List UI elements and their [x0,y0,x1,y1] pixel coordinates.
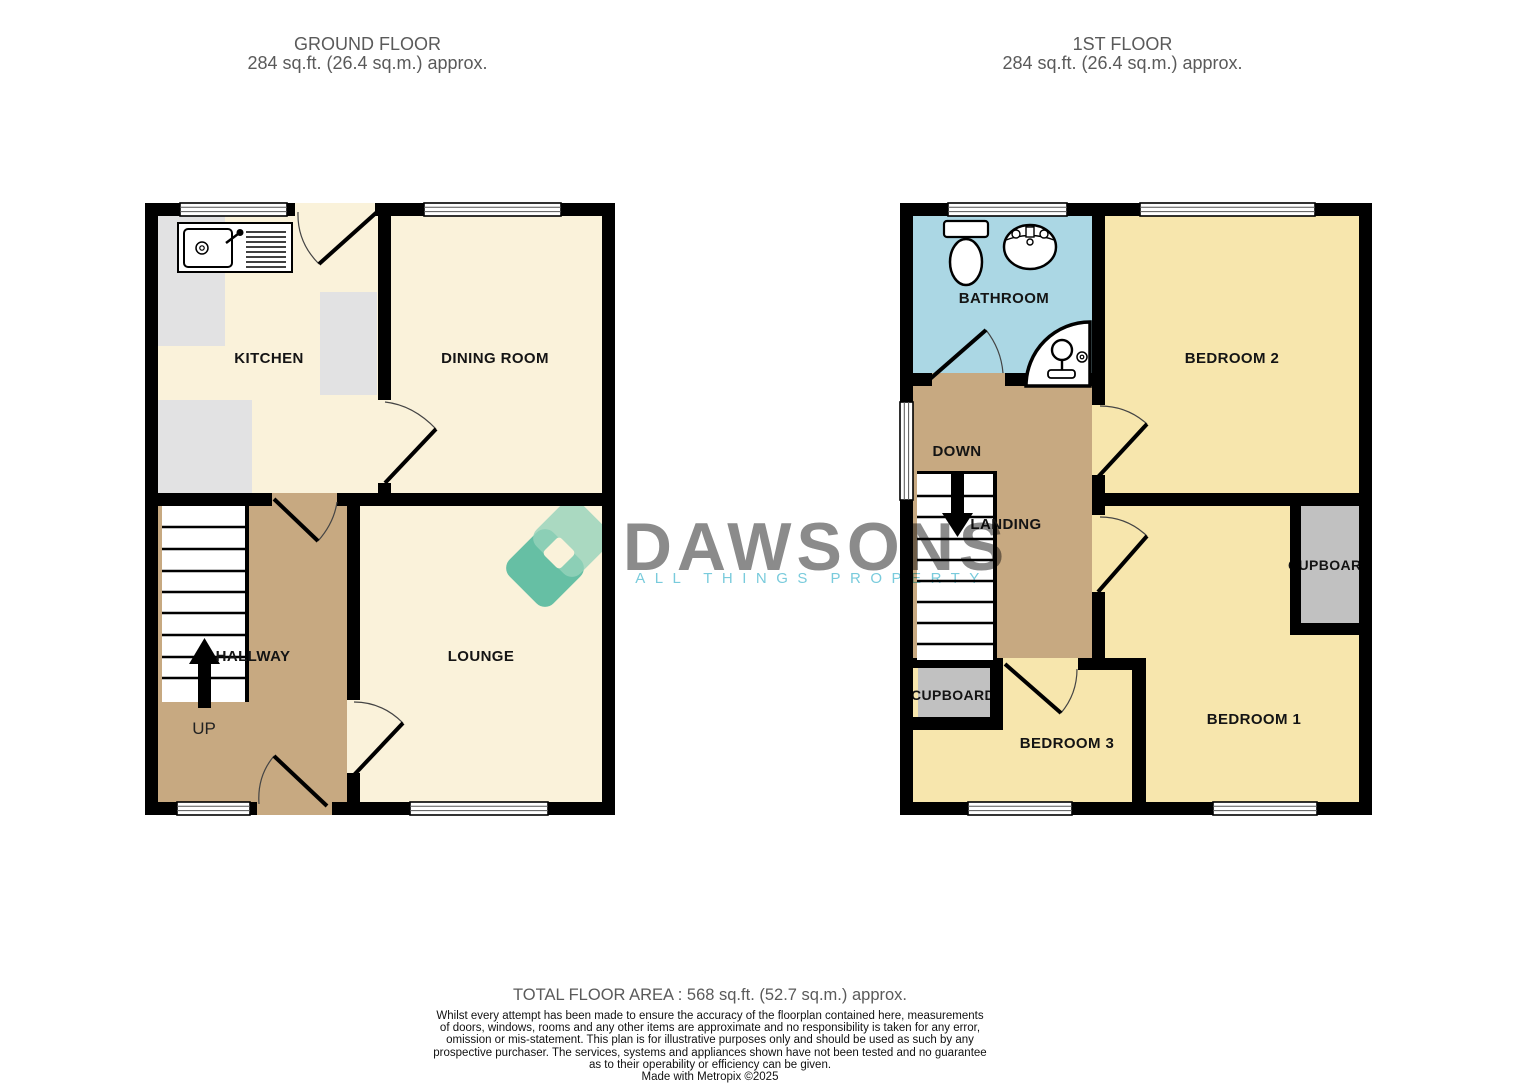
bedroom1-label: BEDROOM 1 [1207,711,1301,728]
kitchen-window [180,203,287,216]
up-label: UP [192,719,216,738]
bathroom-window [948,203,1067,216]
floorplan-drawing: KITCHEN DINING ROOM HALLWAY LOUNGE UP CU… [0,0,1516,1080]
total-floor-area: TOTAL FLOOR AREA : 568 sq.ft. (52.7 sq.m… [408,986,1012,1005]
disclaimer-line: omission or mis-statement. This plan is … [408,1034,1012,1046]
bathroom-label: BATHROOM [959,290,1049,307]
disclaimer-line: of doors, windows, rooms and any other i… [408,1022,1012,1034]
disclaimer-line: Whilst every attempt has been made to en… [408,1010,1012,1022]
bedroom2-door-opening [1092,405,1105,475]
down-label: DOWN [932,443,981,460]
landing-side-window [900,402,913,500]
kitchen-label: KITCHEN [234,350,303,367]
floorplan-page: { "ground_floor": { "title": "GROUND FLO… [0,0,1516,1080]
cupboard-left-label: CUPBOARD [911,687,995,703]
disclaimer-line: prospective purchaser. The services, sys… [408,1047,1012,1059]
footer: TOTAL FLOOR AREA : 568 sq.ft. (52.7 sq.m… [408,986,1012,1083]
bedroom2-window [1140,203,1315,216]
bedroom3-door-opening [1003,658,1078,670]
dining-door-opening [378,400,391,483]
bedroom3-label: BEDROOM 3 [1020,735,1114,752]
dawsons-tagline-text: ALL THINGS PROPERTY [635,570,989,587]
disclaimer: Whilst every attempt has been made to en… [408,1010,1012,1071]
kitchen-sink [178,223,292,272]
hallway-label: HALLWAY [216,648,291,665]
dining-room-label: DINING ROOM [441,350,549,367]
bathroom-door-opening [932,373,1005,386]
stairs-ground [162,506,249,708]
lounge-window [410,802,548,815]
lounge-label: LOUNGE [448,648,515,665]
front-door-opening [257,802,332,815]
kitchen-counter-center [320,292,377,395]
bedroom1-window [1213,802,1317,815]
bedroom3-window [968,802,1072,815]
dining-window [424,203,561,216]
bedroom2-label: BEDROOM 2 [1185,350,1279,367]
lounge-door-opening [347,700,360,773]
metropix-credit: Made with Metropix ©2025 [408,1071,1012,1083]
kitchen-counter-left-lower [158,400,252,493]
hall-window [177,802,250,815]
basin [1004,225,1056,269]
back-door-opening [295,203,375,216]
disclaimer-line: as to their operability or efficiency ca… [408,1059,1012,1071]
ground-floor-plan: KITCHEN DINING ROOM HALLWAY LOUNGE UP [145,203,615,815]
bedroom1-door-opening [1092,515,1105,592]
